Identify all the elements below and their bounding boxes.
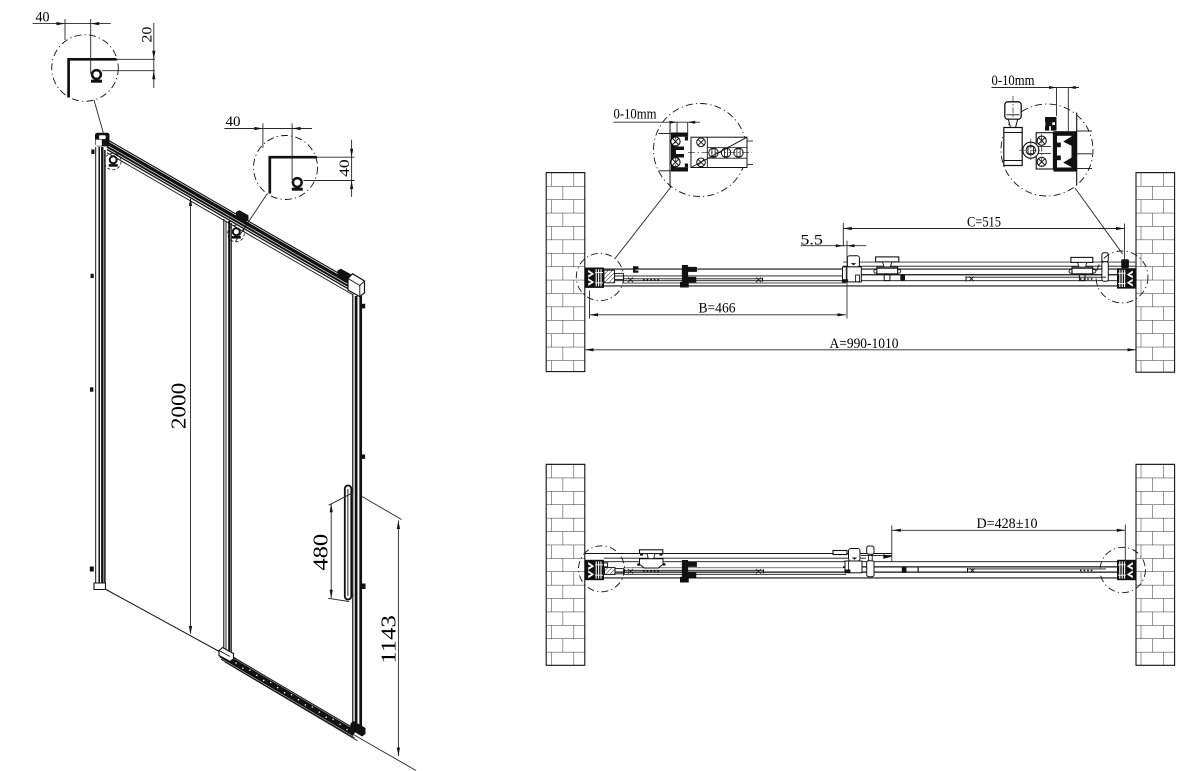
svg-text:1143: 1143 <box>377 615 401 664</box>
svg-text:40: 40 <box>337 159 353 177</box>
svg-text:2000: 2000 <box>167 383 191 429</box>
svg-text:480: 480 <box>309 534 333 571</box>
svg-text:40: 40 <box>226 114 241 130</box>
svg-text:D=428±10: D=428±10 <box>977 516 1038 532</box>
svg-text:0-10mm: 0-10mm <box>614 107 658 123</box>
svg-text:20: 20 <box>140 27 156 43</box>
svg-text:0-10mm: 0-10mm <box>992 73 1036 89</box>
svg-text:B=466: B=466 <box>699 301 736 317</box>
svg-text:40: 40 <box>36 10 50 26</box>
